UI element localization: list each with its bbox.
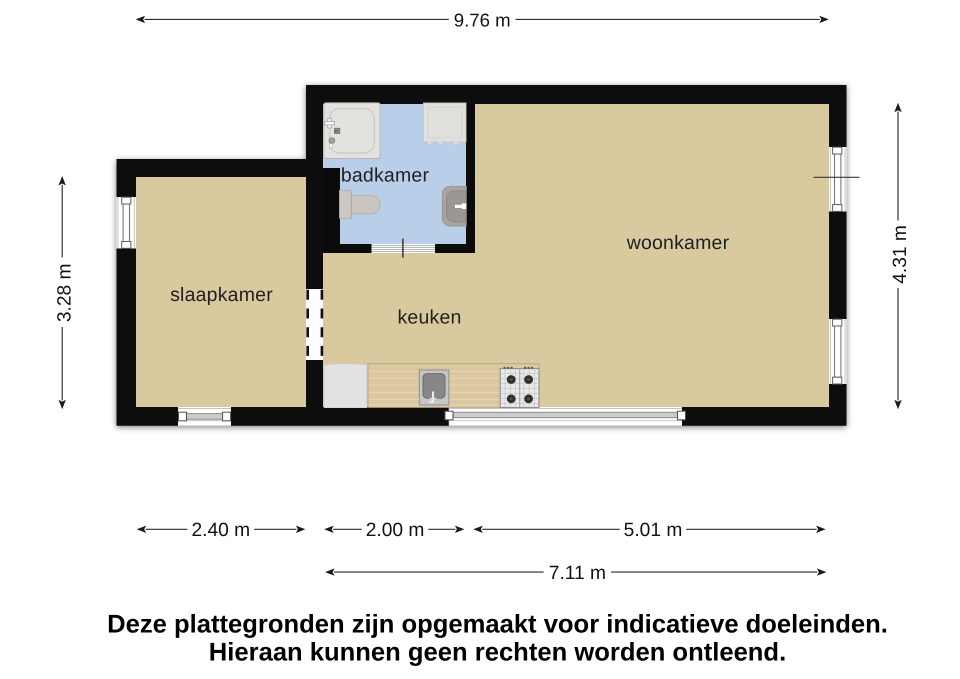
- svg-text:badkamer: badkamer: [341, 165, 430, 187]
- svg-text:slaapkamer: slaapkamer: [170, 284, 273, 306]
- svg-text:keuken: keuken: [397, 307, 461, 329]
- svg-text:woonkamer: woonkamer: [626, 232, 730, 254]
- svg-text:Hieraan kunnen geen rechten wo: Hieraan kunnen geen rechten worden ontle…: [209, 639, 786, 667]
- svg-text:2.40 m: 2.40 m: [191, 520, 250, 541]
- svg-text:5.01 m: 5.01 m: [624, 520, 683, 541]
- svg-text:9.76 m: 9.76 m: [454, 9, 511, 30]
- svg-text:3.28 m: 3.28 m: [54, 263, 75, 322]
- svg-text:Deze plattegronden zijn opgema: Deze plattegronden zijn opgemaakt voor i…: [107, 611, 888, 639]
- svg-text:4.31 m: 4.31 m: [890, 225, 911, 284]
- svg-text:2.00 m: 2.00 m: [366, 520, 425, 541]
- svg-text:7.11 m: 7.11 m: [549, 563, 606, 584]
